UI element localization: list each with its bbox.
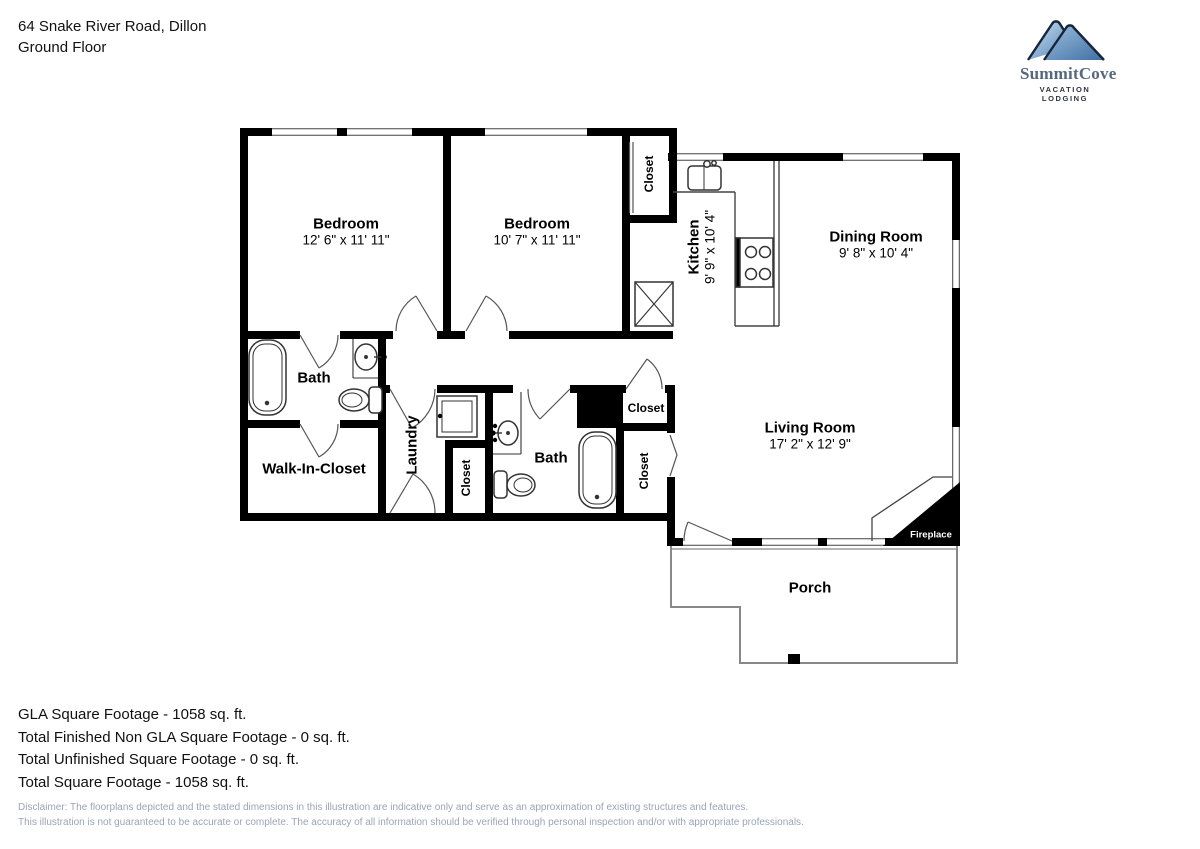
bedroom2-door xyxy=(466,296,507,331)
room-label-closet-bedroom2: Closet xyxy=(643,156,657,193)
toilet-icon xyxy=(339,387,382,413)
disclaimer-line: This illustration is not guaranteed to b… xyxy=(18,815,804,830)
room-label-bedroom-1: Bedroom 12' 6" x 11' 11" xyxy=(302,216,389,249)
walkin-closet-door xyxy=(300,424,338,457)
stove-icon xyxy=(736,238,773,287)
room-label-bath-main: Bath xyxy=(297,369,330,386)
sink-icon xyxy=(490,392,521,454)
room-label-porch: Porch xyxy=(789,579,832,596)
room-label-closet-hall-upper: Closet xyxy=(628,402,665,416)
square-footage-summary: GLA Square Footage - 1058 sq. ft. Total … xyxy=(18,706,350,796)
summary-line: Total Unfinished Square Footage - 0 sq. … xyxy=(18,751,350,768)
bath-main-door xyxy=(300,335,338,368)
washer-icon xyxy=(437,396,477,437)
room-label-closet-hall-lower: Closet xyxy=(638,453,652,490)
porch-post xyxy=(788,654,800,664)
summary-line: GLA Square Footage - 1058 sq. ft. xyxy=(18,706,350,723)
laundry-lower-door xyxy=(390,474,435,513)
bathtub-icon xyxy=(579,432,616,508)
bath-hall-door xyxy=(528,389,570,419)
room-label-dining-room: Dining Room 9' 8" x 10' 4" xyxy=(829,229,922,262)
bedroom1-door xyxy=(396,296,437,331)
porch-outline xyxy=(671,546,957,664)
disclaimer-line: Disclaimer: The floorplans depicted and … xyxy=(18,800,804,815)
room-label-bath-hall: Bath xyxy=(534,449,567,466)
utility-chase-block xyxy=(577,385,623,428)
room-label-kitchen: Kitchen 9' 9" x 10' 4" xyxy=(686,210,719,284)
bathtub-icon xyxy=(249,340,286,415)
summary-line: Total Finished Non GLA Square Footage - … xyxy=(18,729,350,746)
shower-xbox-icon xyxy=(635,282,673,326)
room-label-bedroom-2: Bedroom 10' 7" x 11' 11" xyxy=(493,216,580,249)
closet-hall-door xyxy=(626,359,662,389)
fireplace-label: Fireplace xyxy=(910,531,952,542)
disclaimer: Disclaimer: The floorplans depicted and … xyxy=(18,800,804,830)
room-label-laundry: Laundry xyxy=(403,415,420,474)
kitchen-sink-icon xyxy=(688,161,721,190)
room-label-walk-in-closet: Walk-In-Closet xyxy=(262,460,366,477)
toilet-icon xyxy=(494,471,535,498)
summary-line: Total Square Footage - 1058 sq. ft. xyxy=(18,774,350,791)
room-label-living-room: Living Room 17' 2" x 12' 9" xyxy=(765,420,856,453)
room-label-closet-laundry: Closet xyxy=(460,460,474,497)
